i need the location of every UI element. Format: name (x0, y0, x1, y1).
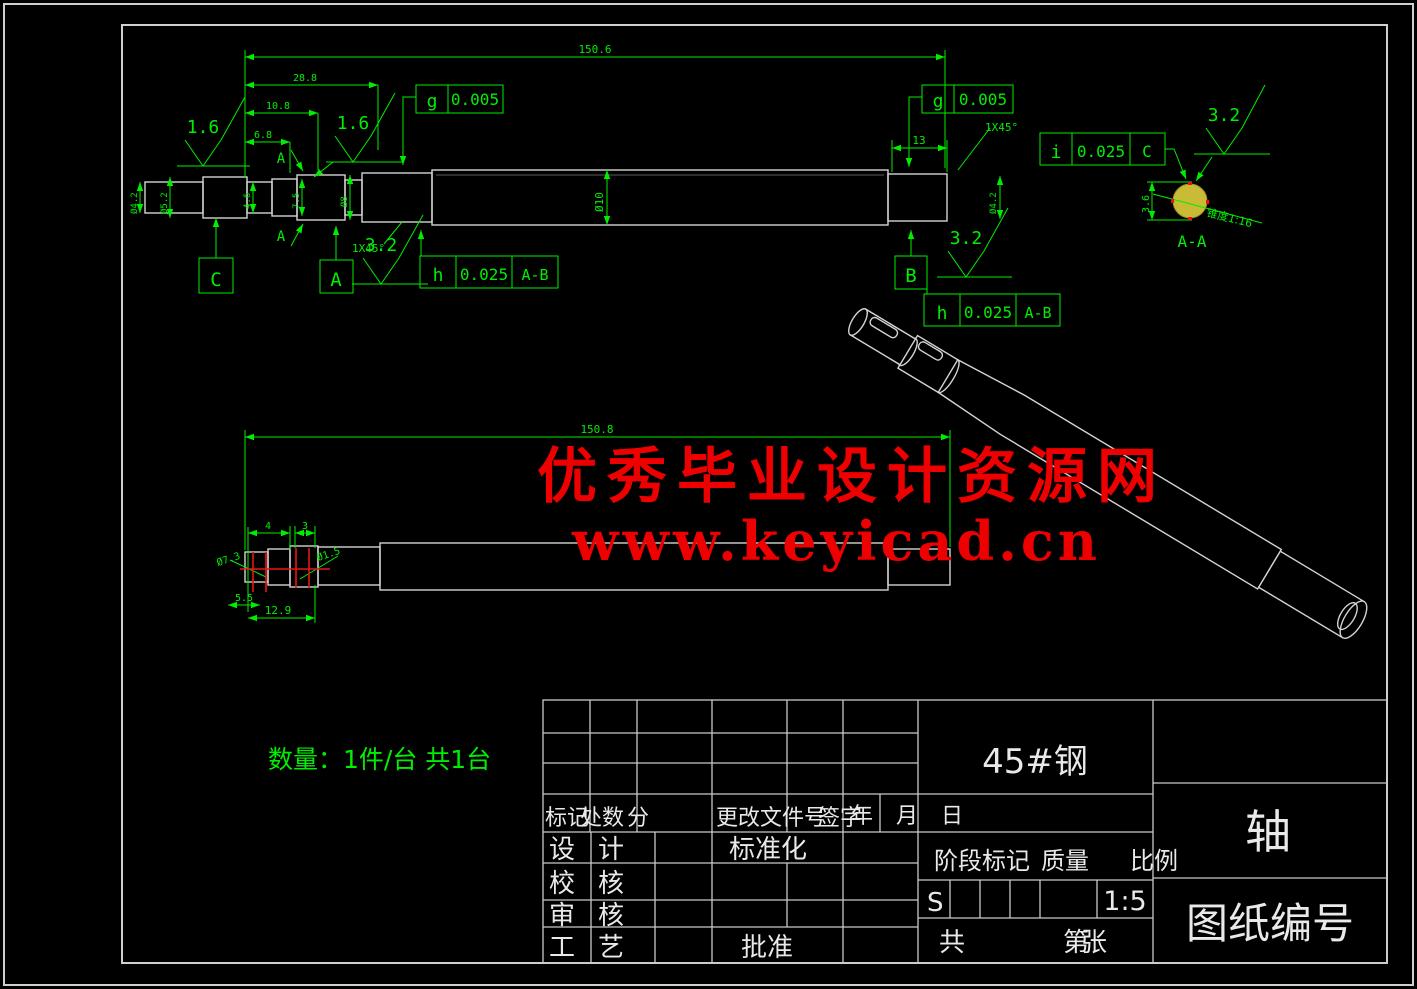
watermark-line2: www.keyicad.cn (571, 509, 1101, 573)
leader-g-left (403, 97, 416, 165)
dim-seg-b: 7.5 (292, 193, 302, 209)
roughness-symbol-aa (1194, 85, 1270, 181)
part-name: 轴 (1245, 805, 1291, 859)
frame-h-right-val: 0.025 (964, 303, 1012, 322)
title-block-text: 标记 处数 分 更改文件号 签字 年 月 日 设 计 标准化 校 核 审 核 工… (545, 742, 1354, 963)
dim-depth: 5.5 (235, 593, 253, 604)
scale-label: 比例 (1130, 847, 1178, 875)
frame-i-val: 0.025 (1077, 142, 1125, 161)
roughness-bottom-left: 3.2 (365, 235, 398, 256)
section-letter-top: A (277, 151, 286, 167)
leader-g-right (909, 97, 922, 167)
datum-a-letter: A (330, 269, 342, 291)
front-view-shaft (145, 170, 947, 225)
watermark: 优秀毕业设计资源网 www.keyicad.cn (537, 442, 1167, 573)
watermark-line1: 优秀毕业设计资源网 (537, 442, 1167, 512)
role-audit-b: 核 (598, 901, 624, 931)
dim-dia-right: Ø4.2 (988, 192, 999, 214)
role-audit-a: 审 (549, 901, 575, 931)
role-design-a: 设 (549, 835, 575, 865)
frame-g-right-val: 0.005 (959, 90, 1007, 109)
leader-chamfer-right (958, 128, 990, 170)
sheet-total-label: 共 (939, 928, 965, 958)
chamfer-right-label: 1X45° (985, 121, 1018, 134)
role-check-b: 核 (598, 869, 624, 899)
role-std: 标准化 (729, 835, 807, 865)
roughness-mid: 1.6 (337, 113, 370, 134)
cad-drawing-screenshot: 150.6 28.8 10.8 6.8 13 Ø10 Ø4.2 Ø5.2 4.6… (0, 0, 1417, 989)
stage-label: 阶段标记 (934, 847, 1030, 875)
dim-dia-left-a: Ø4.2 (129, 192, 140, 214)
frame-h-right-ref: A-B (1024, 304, 1051, 322)
frame-h-left-val: 0.025 (460, 265, 508, 284)
dim-seg-a: 4.6 (243, 193, 253, 209)
dim-dia10: Ø10 (593, 192, 606, 212)
green-annotations: 150.6 28.8 10.8 6.8 13 Ø10 Ø4.2 Ø5.2 4.6… (129, 43, 1254, 774)
scale-value: 1:5 (1103, 886, 1146, 917)
drawing-no-label: 图纸编号 (1186, 899, 1354, 948)
section-aa-dim: 3.6 (1141, 195, 1152, 213)
role-design-b: 计 (598, 835, 624, 865)
roughness-aa: 3.2 (1208, 105, 1241, 126)
s-label: S (927, 888, 944, 918)
dim-key2-dia: Ø1.5 (315, 545, 342, 564)
datum-c-letter: C (210, 269, 221, 291)
section-arrow-top (291, 150, 303, 171)
dim-key1-len: 4 (265, 521, 271, 532)
frame-h-left-ref: A-B (521, 266, 548, 284)
frame-h-right-sym: h (937, 303, 948, 324)
rev-day-label: 日 (941, 804, 963, 829)
dim-span: 12.9 (265, 604, 292, 617)
rev-month-label: 月 (896, 804, 918, 829)
section-arrow-bottom (291, 224, 303, 246)
dim-overall-front: 150.6 (578, 43, 611, 56)
dim-dia-left-b: Ø5.2 (159, 192, 170, 214)
dim-seg-c: Ø8 (339, 196, 350, 207)
rev-year-label: 年 (851, 804, 873, 829)
frame-g-right-sym: g (933, 91, 944, 112)
dim-6-8: 6.8 (254, 130, 272, 141)
dim-13: 13 (912, 134, 925, 147)
section-aa-label: A-A (1178, 232, 1207, 251)
quantity-note: 数量：1件/台 共1台 (268, 745, 491, 774)
dim-overall-bottom: 150.8 (580, 423, 613, 436)
frame-h-left-sym: h (433, 265, 444, 286)
rev-zone-label: 分 (627, 806, 649, 831)
role-check-a: 校 (549, 869, 575, 899)
rev-count-label: 处数 (580, 806, 624, 831)
sheet-unit-label: 张 (1081, 928, 1107, 958)
frame-i-ref: C (1142, 142, 1152, 161)
taper-label: 锥度1:16 (1205, 205, 1254, 230)
cad-canvas: 150.6 28.8 10.8 6.8 13 Ø10 Ø4.2 Ø5.2 4.6… (0, 0, 1417, 989)
dim-key1-dia: Ø7.3 (215, 550, 242, 569)
dim-28-8: 28.8 (293, 73, 317, 84)
datum-b-letter: B (905, 265, 916, 287)
rev-doc-label: 更改文件号 (716, 806, 826, 831)
role-approve: 批准 (741, 933, 793, 963)
section-letter-bottom: A (277, 229, 286, 245)
mass-label: 质量 (1041, 847, 1089, 875)
role-craft-a: 工 (549, 933, 575, 963)
frame-g-left-sym: g (427, 91, 438, 112)
dim-key2-len: 3 (302, 521, 308, 532)
frame-g-left-val: 0.005 (451, 90, 499, 109)
material-label: 45#钢 (982, 742, 1088, 782)
dim-10-8: 10.8 (266, 101, 290, 112)
roughness-bottom-right: 3.2 (950, 228, 983, 249)
roughness-left: 1.6 (187, 117, 220, 138)
frame-i-sym: i (1051, 142, 1062, 163)
role-craft-b: 艺 (598, 933, 624, 963)
